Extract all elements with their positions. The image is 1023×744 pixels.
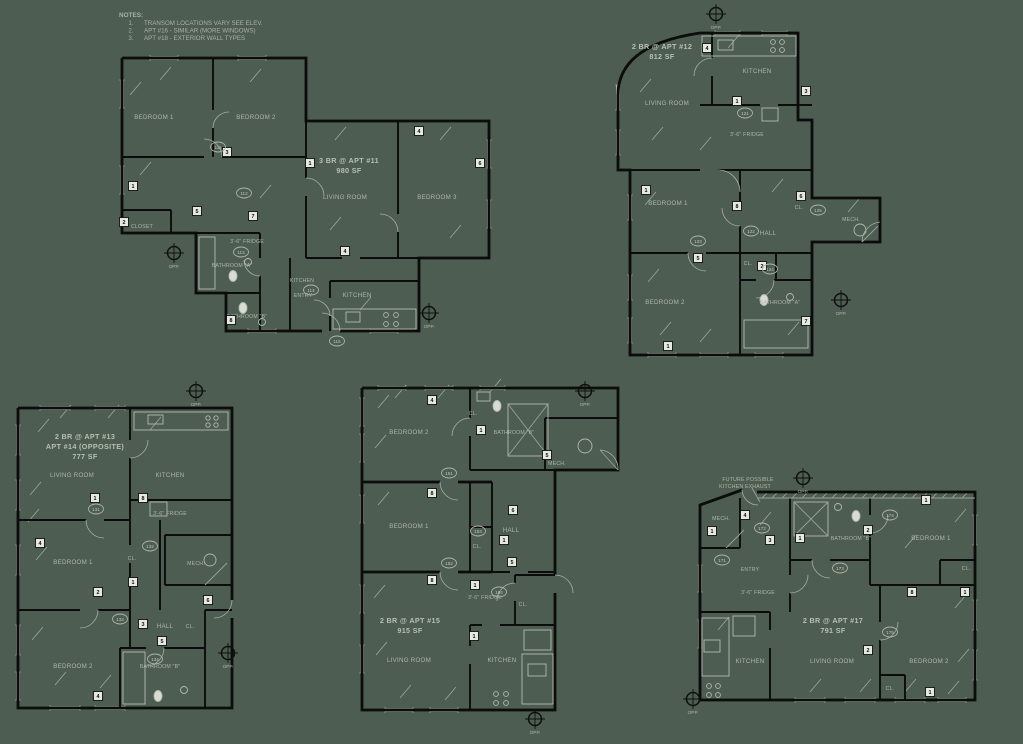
wall-type-tag-number: 8 (911, 590, 914, 596)
apt13-interior-walls (18, 408, 232, 708)
stove-burner (716, 684, 721, 689)
door-number: 112 (240, 191, 248, 196)
wall-type-tag-number: 7 (252, 214, 255, 220)
window-swing-mark (140, 162, 151, 175)
wall-type-tag-number: 1 (929, 690, 932, 696)
shower-hatch (794, 502, 828, 536)
door-number: 173 (836, 566, 844, 571)
stove-burner (384, 313, 389, 318)
wall-type-tag-number: 6 (512, 508, 515, 514)
wall-type-tag-number: 2 (867, 528, 870, 534)
door-number: 132 (146, 544, 154, 549)
closet-label: CL. (128, 556, 137, 562)
window-swing-mark (660, 322, 671, 335)
wall-type-tag-number: 4 (97, 694, 100, 700)
stove-burner (394, 322, 399, 327)
wall-type-tag-number: 1 (503, 538, 506, 544)
window-swing-mark (440, 127, 451, 140)
note-number: 2. (128, 28, 133, 35)
stove-burner (771, 48, 776, 53)
window-swing-mark (335, 127, 346, 140)
apt11-interior-walls (122, 58, 419, 331)
room-label-living: LIVING ROOM (387, 657, 431, 664)
room-label-kitchen: KITCHEN (156, 472, 185, 479)
closet-label: CL. (473, 544, 482, 550)
wall-type-tag-number: 1 (711, 529, 714, 535)
window-swing-mark (160, 67, 171, 80)
stove-burner (394, 313, 399, 318)
wall-type-tag-number: 8 (142, 496, 145, 502)
wall-type-tag-number: 4 (744, 513, 747, 519)
bathtub (123, 652, 145, 704)
wall-type-tag-number: 5 (511, 560, 514, 566)
wall-type-tag-number: 8 (736, 204, 739, 210)
stove-burner (716, 693, 721, 698)
window-swing-mark (36, 547, 47, 560)
door-number: 152 (445, 561, 453, 566)
stove-burner (206, 423, 210, 427)
wall-type-tag-number: 5 (196, 209, 199, 215)
window-swing-mark (640, 79, 651, 92)
window-swing-mark (55, 672, 66, 685)
door-number: 125 (814, 208, 822, 213)
stove-burner (206, 416, 210, 420)
stove-burner (494, 692, 499, 697)
fridge (524, 630, 551, 650)
room-label-bedroom1: BEDROOM 1 (389, 523, 429, 530)
door-number: 123 (694, 239, 702, 244)
window-swing-mark (652, 127, 663, 140)
room-label-kitchen-leader: KITCHEN (290, 278, 314, 284)
room-label-kitchen: KITCHEN (488, 657, 517, 664)
window-swing-mark (400, 685, 411, 698)
room-label-mech: MECH. (712, 516, 730, 522)
closet-label: CL. (519, 602, 528, 608)
wall-type-tag-number: 5 (697, 256, 700, 262)
wall-type-tag-number: 5 (546, 453, 549, 459)
window-swing-mark (788, 322, 799, 335)
wall-type-tag-number: 6 (207, 598, 210, 604)
section-marker-label: OPP. (580, 402, 591, 408)
section-marker-label: OPP. (798, 489, 809, 495)
bath-sink (835, 504, 842, 511)
door-number: 133 (116, 617, 124, 622)
room-label-bedroom3: BEDROOM 3 (417, 194, 457, 201)
window-swing-mark (130, 82, 141, 95)
room-label-kitchen: KITCHEN (736, 658, 765, 665)
wall-type-tag-number: 1 (925, 498, 928, 504)
note-text: APT #18 - EXTERIOR WALL TYPES (144, 35, 245, 42)
exhaust-note-line1: FUTURE POSSIBLE (722, 477, 773, 483)
apt13-area: 777 SF (72, 452, 98, 461)
decor-layer (15, 30, 977, 712)
section-marker-label: OPP. (688, 710, 699, 716)
stove-burner (494, 701, 499, 706)
fridge (762, 108, 778, 121)
fridge (733, 616, 755, 636)
room-label-bedroom2: BEDROOM 2 (909, 658, 949, 665)
bathtub (744, 320, 808, 348)
door-number: 175 (886, 630, 894, 635)
room-label-bedroom1: BEDROOM 1 (648, 200, 688, 207)
window-swing-mark (718, 617, 729, 630)
window-swing-mark (860, 679, 871, 692)
room-label-closet: CLOSET (131, 224, 154, 230)
notes-block: NOTES: 1. TRANSOM LOCATIONS VARY SEE ELE… (119, 12, 263, 42)
wall-type-tag-number: 4 (418, 129, 421, 135)
stove-burner (384, 322, 389, 327)
wall-type-tag-number: 1 (667, 344, 670, 350)
bath-sink (477, 392, 490, 401)
apt17-title: 2 BR @ APT #17 (803, 616, 863, 625)
apt11-title: 3 BR @ APT #11 (319, 156, 379, 165)
wall-type-tag-number: 1 (132, 184, 135, 190)
water-heater (204, 554, 216, 566)
window-swing-mark (905, 679, 916, 692)
window-swing-mark (38, 419, 49, 432)
door-number: 151 (445, 471, 453, 476)
wall-type-tag-number: 7 (805, 319, 808, 325)
wall-type-tag-number: 3 (142, 622, 145, 628)
apt15-door-swings (440, 418, 618, 601)
wall-type-tag-number: 1 (480, 428, 483, 434)
closet-label: CL. (795, 205, 804, 211)
apt12-area: 812 SF (649, 52, 675, 61)
window-swing-mark (728, 35, 739, 48)
plan-apt-11: BEDROOM 1 BEDROOM 2 3 BR @ APT #11 980 S… (122, 58, 489, 331)
apt12-door-swings (688, 58, 880, 298)
window-swing-mark (32, 627, 43, 640)
fridge-note: 3'-6" FRIDGE (468, 595, 502, 601)
room-label-bedroom2: BEDROOM 2 (236, 114, 276, 121)
fridge-note: 3'-6" FRIDGE (230, 239, 264, 245)
room-label-living: LIVING ROOM (645, 100, 689, 107)
window-swing-mark (330, 217, 341, 230)
exhaust-note-line2: KITCHEN EXHAUST (719, 484, 771, 490)
section-marker-label: OPP. (424, 324, 435, 330)
apt15-area: 915 SF (397, 626, 423, 635)
wall-type-tag-number: 4 (431, 398, 434, 404)
window-swing-mark (955, 509, 966, 522)
section-marker-label: OPP. (191, 402, 202, 408)
closet-label: CL. (469, 411, 478, 417)
room-label-living: LIVING ROOM (50, 472, 94, 479)
wall-type-tag-number: 3 (769, 538, 772, 544)
door-number: 121 (741, 111, 749, 116)
room-label-bedroom2: BEDROOM 2 (389, 429, 429, 436)
section-marker-label: OPP. (530, 730, 541, 736)
water-heater (854, 224, 866, 236)
kitchen-sink (148, 415, 163, 424)
fridge-note: 3'-6" FRIDGE (730, 132, 764, 138)
window-swing-mark (250, 69, 261, 82)
window-swing-mark (100, 675, 111, 688)
plan-apt-13-14: 2 BR @ APT #13 APT #14 (OPPOSITE) 777 SF… (18, 408, 232, 708)
door-number: 172 (758, 526, 766, 531)
window-swing-mark (378, 395, 389, 408)
stove-burner (780, 48, 785, 53)
wall-type-tag-number: 1 (736, 99, 739, 105)
note-number: 1. (128, 20, 133, 27)
room-label-bedroom2: BEDROOM 2 (53, 663, 93, 670)
window-swing-mark (150, 417, 161, 430)
fridge-note: 3'-6" FRIDGE (153, 511, 187, 517)
section-marker-label: OPP. (836, 311, 847, 317)
notes-title: NOTES: (119, 12, 143, 19)
note-text: APT #16 - SIMILAR (MORE WINDOWS) (144, 28, 256, 35)
bath-sink (181, 687, 188, 694)
stove-burner (504, 692, 509, 697)
apt12-title: 2 BR @ APT #12 (632, 42, 692, 51)
note-text: TRANSOM LOCATIONS VARY SEE ELEV. (144, 20, 263, 27)
room-label-bedroom1: BEDROOM 1 (53, 559, 93, 566)
window-swing-mark (772, 179, 783, 192)
door-number: 122 (747, 229, 755, 234)
door-number: 113 (237, 250, 245, 255)
door-number: 111 (215, 145, 222, 150)
room-label-bath-b: BATHROOM "B" (140, 664, 181, 670)
room-label-hall: HALL (503, 527, 520, 534)
toilet (493, 401, 501, 412)
wall-type-tag-number: 2 (867, 648, 870, 654)
room-label-kitchen: KITCHEN (743, 68, 772, 75)
kitchen-counter (702, 36, 796, 56)
room-label-entry: ENTRY (294, 293, 313, 299)
wall-type-tag-number: 6 (479, 161, 482, 167)
room-label-hall: HALL (760, 230, 777, 237)
door-number: 114 (307, 288, 315, 293)
room-label-bath-b: BATHROOM "B" (494, 430, 535, 436)
toilet (154, 691, 162, 702)
room-label-mech: MECH. (187, 561, 205, 567)
floor-plan-svg: NOTES: 1. TRANSOM LOCATIONS VARY SEE ELE… (0, 0, 1023, 744)
window-swing-mark (810, 679, 821, 692)
stove-burner (214, 423, 218, 427)
wall-type-tag-number: 8 (431, 578, 434, 584)
window-swing-mark (445, 687, 456, 700)
plan-apt-15: BEDROOM 2 BATHROOM "B" CL. MECH. BEDROOM… (362, 388, 618, 710)
section-marker-label: OPP. (169, 264, 180, 270)
door-number: 124 (766, 267, 774, 272)
window-swing-mark (374, 585, 385, 598)
wall-type-tag-number: 1 (94, 496, 97, 502)
wall-type-tag-number: 1 (474, 583, 477, 589)
room-label-mech: MECH. (842, 217, 860, 223)
water-heater (578, 439, 592, 453)
window-swing-mark (648, 269, 659, 282)
wall-type-tag-number: 8 (431, 491, 434, 497)
stove-burner (707, 684, 712, 689)
stove-burner (214, 416, 218, 420)
wall-type-tag-number: 5 (161, 639, 164, 645)
section-marker-label: OPP. (223, 664, 234, 670)
window-swing-mark (376, 642, 387, 655)
wall-type-tag-number: 4 (39, 541, 42, 547)
closet-label: CL. (886, 686, 895, 692)
closet-label: CL. (186, 624, 195, 630)
door-number: 153 (474, 529, 482, 534)
room-label-living: LIVING ROOM (323, 194, 367, 201)
window-swing-mark (378, 492, 389, 505)
wall-type-tag-number: 2 (123, 220, 126, 226)
door-number: 171 (718, 558, 726, 563)
wall-type-tag-number: 1 (799, 536, 802, 542)
room-label-entry: ENTRY (741, 567, 760, 573)
room-label-bath-b: BATHROOM "B" (831, 536, 872, 542)
closet-label: CL. (962, 566, 971, 572)
wall-type-tag-number: 1 (132, 580, 135, 586)
stove-burner (771, 40, 776, 45)
room-label-bedroom1: BEDROOM 1 (134, 114, 174, 121)
door-number: 134 (151, 657, 159, 662)
kitchen-counter (333, 309, 416, 329)
stove-burner (780, 40, 785, 45)
wall-type-tag-number: 2 (97, 590, 100, 596)
stove-burner (707, 693, 712, 698)
kitchen-counter (522, 654, 553, 704)
mech-door-leaf (205, 563, 227, 585)
apt17-interior-walls (700, 498, 975, 700)
window-swing-mark (30, 482, 41, 495)
room-label-bedroom1: BEDROOM 1 (911, 535, 951, 542)
apt13-title2: APT #14 (OPPOSITE) (46, 442, 124, 451)
apt13-exterior-walls (18, 408, 232, 708)
window-swing-mark (955, 595, 966, 608)
section-marker-label: OPP. (711, 25, 722, 31)
door-number: 131 (92, 507, 100, 512)
window-swing-mark (958, 649, 969, 662)
stove-burner (504, 701, 509, 706)
room-label-bedroom2: BEDROOM 2 (645, 299, 685, 306)
note-number: 3. (128, 35, 133, 42)
window-swing-mark (948, 681, 959, 694)
room-label-living: LIVING ROOM (810, 658, 854, 665)
wall-type-tag-number: 3 (226, 150, 229, 156)
wall-type-tag-number: 1 (473, 634, 476, 640)
window-swing-mark (700, 329, 711, 342)
room-label-hall: HALL (157, 623, 174, 630)
kitchen-counter (702, 618, 729, 676)
fridge-note: 3'-6" FRIDGE (741, 590, 775, 596)
wall-type-tag-number: 1 (645, 188, 648, 194)
window-swing-mark (260, 185, 271, 198)
room-label-bath-a: BATHROOM "A" (212, 263, 253, 269)
window-swing-mark (848, 199, 859, 212)
room-label-kitchen: KITCHEN (343, 292, 372, 299)
room-label-mech: MECH. (548, 461, 566, 467)
apt15-title: 2 BR @ APT #15 (380, 616, 440, 625)
apt17-area: 791 SF (820, 626, 846, 635)
toilet (239, 303, 247, 314)
wall-type-tag-number: 4 (706, 46, 709, 52)
toilet (229, 271, 237, 282)
kitchen-sink (528, 664, 546, 676)
floor-plan-sheet: NOTES: 1. TRANSOM LOCATIONS VARY SEE ELE… (0, 0, 1023, 744)
toilet (852, 511, 860, 522)
window-swing-mark (375, 435, 386, 448)
closet-label: CL. (744, 261, 753, 267)
apt13-title: 2 BR @ APT #13 (55, 432, 115, 441)
wall-type-tag-number: 1 (964, 590, 967, 596)
kitchen-sink (704, 640, 720, 652)
wall-type-tag-number: 4 (344, 249, 347, 255)
door-number: 174 (886, 513, 894, 518)
wall-type-tag-number: 3 (805, 89, 808, 95)
wall-type-tag-number: 6 (800, 194, 803, 200)
note-leader (752, 488, 760, 502)
window-swing-mark (450, 225, 461, 238)
apt11-area: 980 SF (336, 166, 362, 175)
wall-type-tag-number: 1 (309, 161, 312, 167)
window-swing-mark (700, 137, 711, 150)
wall-type-tag-number: 8 (230, 318, 233, 324)
door-number: 115 (333, 339, 341, 344)
door-number: 154 (495, 590, 503, 595)
kitchen-sink (346, 312, 360, 322)
room-label-bath-a: BATHROOM "A" (760, 300, 801, 306)
